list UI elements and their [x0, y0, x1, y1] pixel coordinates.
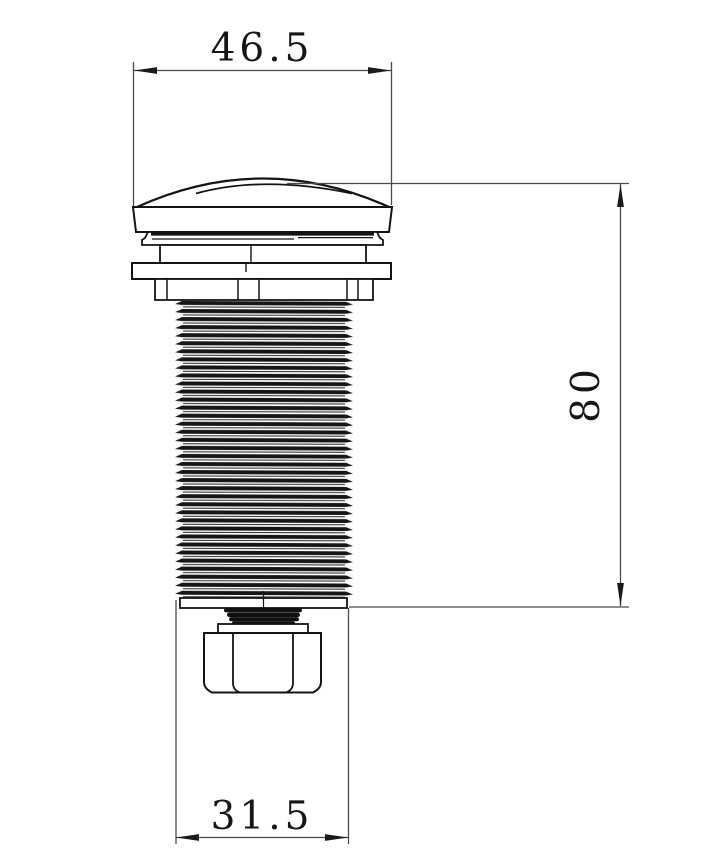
mounting-flange [132, 263, 391, 279]
arrowhead-left-icon [134, 67, 157, 74]
drawing-canvas: 46.5 80 31.5 [0, 0, 709, 861]
under-cap-ring [142, 232, 383, 245]
arrowhead-up-icon [617, 184, 624, 207]
notched-ring [155, 279, 373, 300]
washer [218, 624, 308, 633]
arrowhead-right-icon [325, 834, 348, 841]
arrowhead-down-icon [617, 583, 624, 606]
dome-cap [133, 179, 392, 233]
arrowhead-right-icon [368, 67, 391, 74]
arrowhead-left-icon [176, 834, 199, 841]
hex-nut [204, 633, 321, 693]
threaded-shaft [175, 300, 353, 598]
fitting-body [132, 179, 392, 693]
neck-ring [160, 245, 366, 263]
drawing-page: 46.5 80 31.5 [0, 0, 709, 861]
dimension-text-height: 80 [564, 365, 609, 423]
cap-skirt [133, 207, 392, 232]
thread-stub [224, 608, 302, 625]
dimension-text-bottom-width: 31.5 [211, 794, 314, 839]
dimension-text-top-width: 46.5 [211, 26, 314, 71]
